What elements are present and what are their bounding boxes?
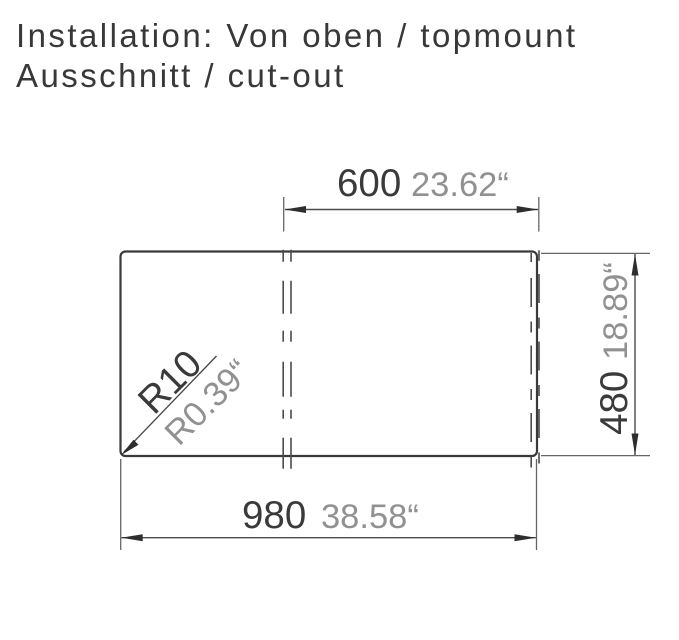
svg-text:23.62“: 23.62“ (411, 166, 509, 204)
svg-text:38.58“: 38.58“ (321, 498, 419, 536)
svg-text:480 18.89“: 480 18.89“ (593, 262, 636, 435)
svg-text:600: 600 (337, 162, 401, 205)
svg-text:980: 980 (242, 494, 306, 537)
